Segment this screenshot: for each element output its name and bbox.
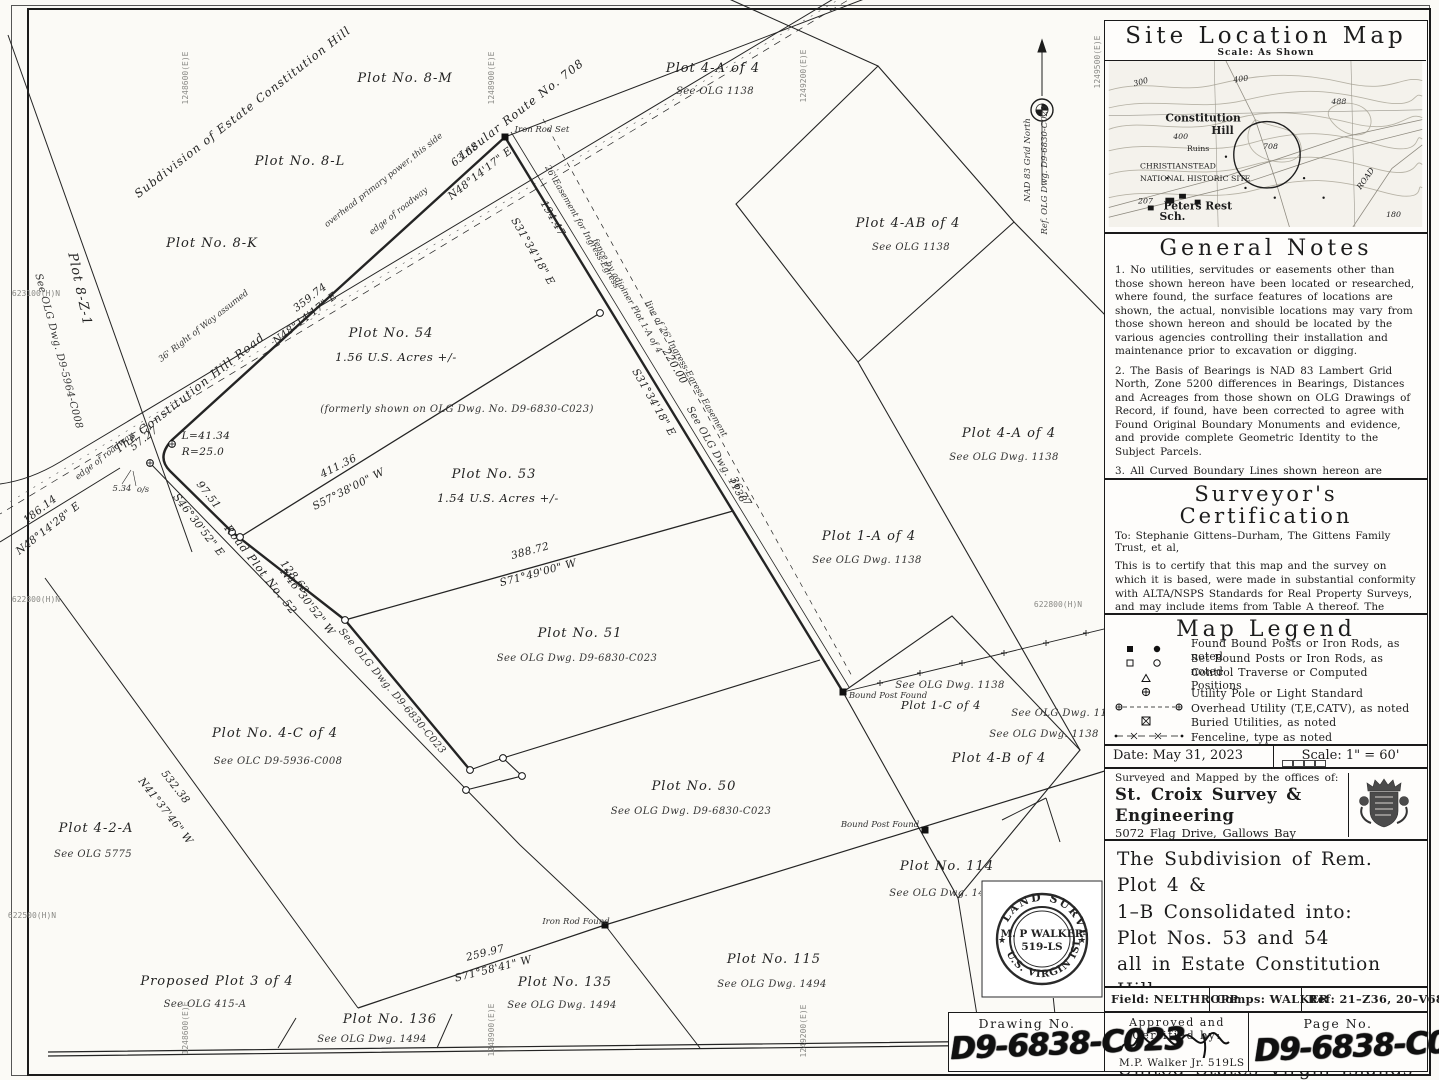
survey-marker-xcirc	[169, 441, 176, 448]
map-label: S31°34'18" E	[508, 216, 556, 288]
map-label: Plot 4-A of 4	[665, 61, 760, 76]
map-label: 97.51	[194, 479, 223, 512]
map-label: See OLG Dwg. 1138	[949, 452, 1058, 463]
site-map-scale-note: Scale: As Shown	[1105, 48, 1427, 58]
map-label: Plot 4-B of 4	[951, 751, 1046, 766]
survey-map: Subdivision of Estate Constitution HillP…	[0, 0, 1108, 1080]
topo-label: Hill	[1211, 124, 1233, 137]
map-labels: Subdivision of Estate Constitution HillP…	[13, 23, 1108, 1045]
survey-marker-sq	[840, 689, 847, 696]
map-label: Plot 4-AB of 4	[855, 216, 961, 231]
map-label: Plot No. 8-K	[165, 236, 258, 251]
map-label: Plot 8-Z-1	[64, 250, 94, 327]
map-label: Ref. OLG Dwg. D9-6830-C023	[1040, 105, 1050, 235]
map-label: 1249200(E)E	[799, 1004, 808, 1057]
map-label: See OLG 415-A	[164, 999, 247, 1010]
topo-label: 207	[1137, 197, 1153, 206]
map-label: 1249200(E)E	[799, 49, 808, 102]
survey-marker-xcirc	[147, 460, 154, 467]
map-label: R=25.0	[181, 446, 224, 458]
map-label: Iron Rod Set	[514, 125, 570, 135]
surveyor-seal: LAND SURVEYOR U.S. VIRGIN ISLANDS M. P W…	[981, 880, 1103, 998]
map-label: 1.54 U.S. Acres +/-	[437, 491, 559, 505]
topo-label: 180	[1386, 210, 1401, 219]
map-label: Iron Rod Found	[541, 917, 610, 927]
seal-star-right: ★	[1078, 936, 1086, 946]
survey-marker-tick	[1043, 640, 1049, 646]
map-label: 1248600(E)E	[181, 51, 190, 104]
certification-title: Surveyor's Certification	[1105, 480, 1427, 527]
map-label: Plot No. 136	[342, 1012, 437, 1027]
survey-marker-tick	[917, 670, 923, 676]
topo-label: 708	[1263, 142, 1278, 151]
survey-marker-sq	[502, 134, 509, 141]
seal-number: 519-LS	[1021, 941, 1062, 953]
firm-box: Surveyed and Mapped by the offices of: S…	[1104, 768, 1428, 840]
survey-marker-tick	[877, 680, 883, 686]
general-notes-title: General Notes	[1105, 234, 1427, 260]
topo-label: 400	[1172, 132, 1188, 141]
map-label: See OLG Dwg. 1494	[717, 979, 826, 990]
legend-rows: Found Bound Posts or Iron Rods, as noted…	[1105, 641, 1427, 761]
map-label: Plot No. 115	[726, 952, 821, 967]
topo-label: NATIONAL HISTORIC SITE	[1140, 174, 1251, 183]
survey-marker-tick	[959, 660, 965, 666]
title-line: 1–B Consolidated into:	[1117, 900, 1415, 926]
topo-label: 488	[1330, 97, 1346, 106]
legend-label: Utility Pole or Light Standard	[1191, 687, 1363, 700]
map-label: See OLG Dwg. 1138	[1011, 708, 1108, 719]
map-label: Proposed Plot 3 of 4	[139, 974, 293, 989]
site-location-map-box: Site Location Map Scale: As Shown	[1104, 20, 1428, 233]
map-label: Plot No. 50	[651, 779, 737, 794]
crest-icon	[1355, 773, 1413, 831]
map-label: See OLG Dwg. 1138	[895, 680, 1004, 691]
map-label: o/s	[137, 485, 150, 495]
map-legend-box: Map Legend Found Bound Posts or Iron Rod…	[1104, 614, 1428, 745]
map-label: 1249500(E)E	[1093, 35, 1102, 88]
general-note: 1. No utilities, servitudes or easements…	[1115, 264, 1417, 359]
map-label: Plot 1-A of 4	[821, 529, 916, 544]
map-label: See OLG Dwg. D9-6830-C023	[336, 626, 448, 756]
map-label: See OLG Dwg. D9-6830-C023	[497, 653, 658, 664]
seal-name: M. P WALKER	[1001, 928, 1084, 940]
map-label: 623100(H)N	[12, 289, 60, 298]
certification-to: To: Stephanie Gittens–Durham, The Gitten…	[1105, 527, 1427, 560]
topo-label: CHRISTIANSTEAD	[1140, 162, 1216, 171]
map-label: Subdivision of Estate Constitution Hill	[132, 23, 354, 201]
map-label: See OLC D9-5936-C008	[214, 756, 343, 767]
map-label: (formerly shown on OLG Dwg. No. D9-6830-…	[320, 404, 594, 415]
legend-label: Overhead Utility (T,E,CATV), as noted	[1191, 702, 1409, 715]
olg-ref: Ref: 21–Z36, 20–V68	[1301, 988, 1439, 1011]
map-label: L=41.34	[181, 430, 231, 442]
map-label: Bound Post Found	[840, 820, 920, 830]
map-label: See OLG Dwg. 1494	[317, 1034, 426, 1045]
survey-marker-tick	[1083, 630, 1089, 636]
plan-date: Date: May 31, 2023	[1105, 746, 1273, 767]
map-label: Plot No. 4-C of 4	[211, 726, 338, 741]
map-label: 1248900(E)E	[487, 1003, 496, 1056]
map-label: Plot 4-2-A	[58, 821, 134, 836]
topo-map: 300400488ConstitutionHill400Ruins708CHRI…	[1105, 60, 1426, 227]
comps-ref: Comps: WALKER	[1209, 988, 1301, 1011]
map-label: 622500(H)N	[8, 911, 56, 920]
survey-marker-circ	[342, 617, 349, 624]
map-label: Plot No. 54	[348, 326, 434, 341]
map-label: 1248600(E)E	[181, 1001, 190, 1054]
map-label: Plot 1-C of 4	[900, 698, 981, 712]
plan-scale: Scale: 1" = 60'	[1273, 746, 1427, 767]
map-label: overhead primary power, this side	[323, 131, 445, 230]
date-scale-row: Date: May 31, 2023 Scale: 1" = 60'	[1104, 745, 1428, 768]
map-label: See OLG Dwg. D9-6830-C023	[611, 806, 772, 817]
legend-label: Fenceline, type as noted	[1191, 731, 1332, 744]
map-label: Plot No. 8-M	[356, 71, 452, 86]
map-label: See OLG Dwg. 1138	[989, 729, 1098, 740]
map-label: Plot 4-A of 4	[961, 426, 1056, 441]
seal-star-left: ★	[998, 936, 1006, 946]
map-label: See OLG Dwg. 1138	[812, 555, 921, 566]
map-label: NAD 83 Grid North	[1023, 118, 1033, 203]
map-label: 1248900(E)E	[487, 51, 496, 104]
title-line: Plot Nos. 53 and 54	[1117, 926, 1415, 952]
field-ref: Field: NELTHROPP	[1105, 988, 1209, 1011]
survey-marker-circ	[467, 767, 474, 774]
map-label: 1.56 U.S. Acres +/-	[335, 350, 457, 364]
survey-marker-circ	[500, 755, 507, 762]
map-label: See OLG 1138	[872, 242, 950, 253]
refs-row: Field: NELTHROPP Comps: WALKER Ref: 21–Z…	[1104, 987, 1428, 1012]
map-label: 388.72	[510, 540, 551, 562]
map-label: Plot No. 53	[451, 467, 537, 482]
survey-marker-sq	[922, 827, 929, 834]
site-map-title: Site Location Map	[1105, 21, 1427, 48]
general-note: 2. The Basis of Bearings is NAD 83 Lambe…	[1115, 365, 1417, 460]
drawing-title-block: The Subdivision of Rem. Plot 4 &1–B Cons…	[1104, 840, 1428, 987]
topo-label: Constitution	[1165, 112, 1241, 125]
map-label: See OLG 1138	[676, 86, 754, 97]
survey-plat-sheet: Subdivision of Estate Constitution HillP…	[0, 0, 1439, 1080]
survey-marker-circ	[463, 787, 470, 794]
general-notes-box: General Notes 1. No utilities, servitude…	[1104, 233, 1428, 479]
map-label: Plot No. 114	[899, 859, 994, 874]
legend-label: Buried Utilities, as noted	[1191, 716, 1336, 729]
map-label: See OLG Dwg. 1494	[507, 1000, 616, 1011]
map-label: edge of roadway	[368, 185, 431, 237]
title-line: The Subdivision of Rem. Plot 4 &	[1117, 847, 1415, 900]
map-label: 5.34	[113, 484, 132, 494]
map-label: 622800(H)N	[12, 595, 60, 604]
certification-box: Surveyor's Certification To: Stephanie G…	[1104, 479, 1428, 614]
map-label: Plot No. 51	[537, 626, 623, 641]
survey-marker-circ	[519, 773, 526, 780]
firm-crest	[1348, 773, 1421, 837]
survey-marker-tick	[1001, 650, 1007, 656]
scale-bar	[1282, 760, 1326, 767]
map-label: S31°34'18" E	[629, 367, 677, 439]
topo-label: Ruins	[1187, 144, 1209, 153]
survey-marker-circ	[597, 310, 604, 317]
map-label: Plot No. 135	[517, 975, 612, 990]
map-label: See OLG 5775	[54, 849, 132, 860]
map-label: Plot No. 8-L	[254, 154, 346, 169]
map-label: N41°37'46" W	[135, 775, 196, 848]
topo-label: Sch.	[1160, 210, 1186, 223]
map-label: 622800(H)N	[1034, 600, 1082, 609]
